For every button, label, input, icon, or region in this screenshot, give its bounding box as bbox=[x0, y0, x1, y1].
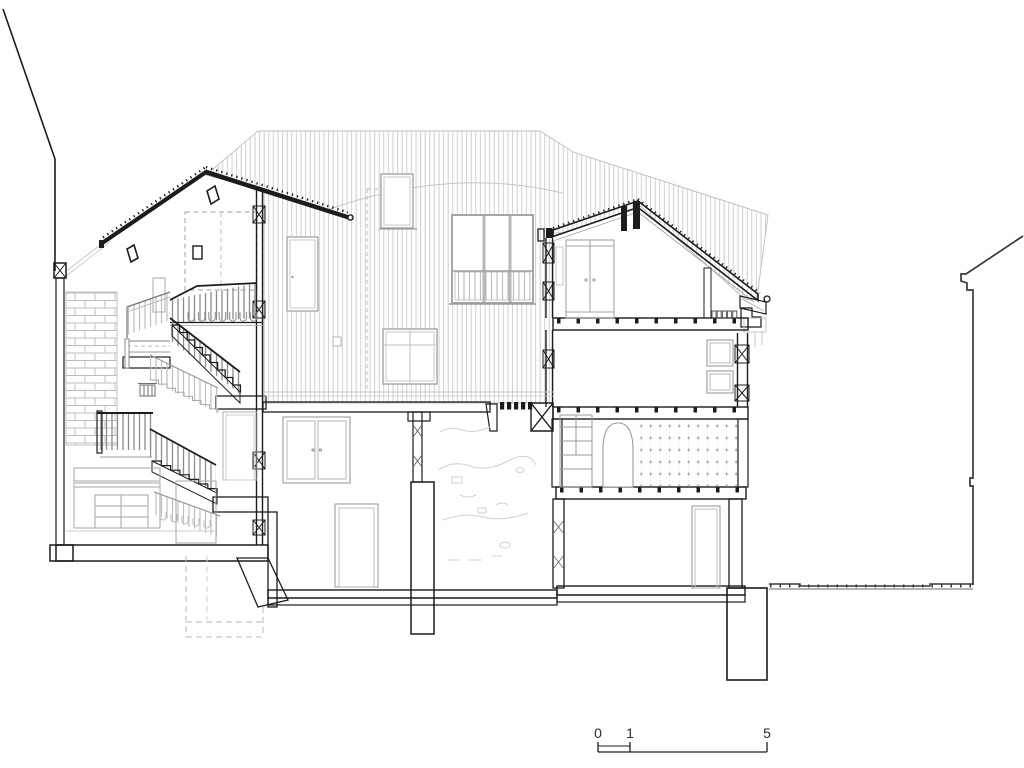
stone-pier-center bbox=[411, 482, 434, 634]
roof-vent-3 bbox=[193, 246, 202, 259]
scale-label-5: 5 bbox=[763, 725, 771, 741]
background-facade bbox=[206, 131, 768, 403]
section-drawing: 0 1 5 bbox=[0, 0, 1024, 768]
gallery-balustrade bbox=[170, 283, 263, 326]
attic-wardrobe bbox=[566, 240, 614, 318]
scale-label-1: 1 bbox=[626, 725, 634, 741]
right-floor-2 bbox=[553, 407, 748, 419]
void-left-wall bbox=[413, 412, 422, 482]
door-floor2-landing bbox=[223, 412, 257, 480]
drawing-sheet: 0 1 5 bbox=[0, 0, 1024, 768]
floor2-landing-slab bbox=[216, 396, 266, 409]
ground-line-right bbox=[769, 584, 973, 589]
corridor-wall-block bbox=[531, 403, 553, 431]
basement-dashed-outline bbox=[186, 556, 263, 637]
wall-switch-box bbox=[333, 337, 341, 346]
ridge-post-2 bbox=[633, 201, 640, 229]
shelf-unit bbox=[560, 415, 592, 487]
basement-door-right bbox=[692, 506, 720, 588]
arched-niche bbox=[603, 423, 633, 487]
slab-ramp bbox=[237, 558, 288, 607]
center-cupboard bbox=[283, 417, 350, 483]
background-door-upper bbox=[287, 237, 318, 311]
right-floor-1 bbox=[553, 318, 748, 330]
background-balcony-window bbox=[449, 215, 536, 304]
mid-landing-balustrade bbox=[97, 411, 153, 457]
walkway-end-post bbox=[486, 404, 497, 431]
tiled-wall bbox=[634, 419, 737, 487]
attic-wall-niche bbox=[556, 247, 563, 285]
walkway-step bbox=[408, 412, 430, 421]
ridge-post-1 bbox=[621, 206, 627, 231]
ground-floor-slab bbox=[56, 545, 268, 561]
background-window-floor2 bbox=[383, 329, 437, 384]
basement-door-left bbox=[335, 504, 378, 587]
attic-post bbox=[704, 268, 711, 318]
boundary-line-left bbox=[3, 9, 55, 271]
wall-footing bbox=[50, 545, 73, 561]
floor1-landing-slab bbox=[213, 497, 268, 512]
neighbor-building-outline bbox=[961, 236, 1023, 585]
staircase bbox=[97, 283, 263, 538]
roof-vent-1 bbox=[127, 245, 138, 262]
scale-label-0: 0 bbox=[594, 725, 602, 741]
roof-vent-2 bbox=[207, 186, 219, 204]
upper-return-flight bbox=[127, 292, 170, 338]
attic-dashed-outline bbox=[185, 212, 257, 290]
right-gutter bbox=[764, 296, 770, 302]
radiator bbox=[712, 311, 737, 318]
bottom-slab-left bbox=[268, 590, 557, 605]
background-attic-window bbox=[379, 174, 417, 229]
scale-bar: 0 1 5 bbox=[594, 725, 771, 752]
eave-detail-right bbox=[740, 296, 766, 347]
void-rock-sketch bbox=[438, 427, 536, 560]
plant-pot bbox=[138, 384, 157, 397]
wall-frames bbox=[707, 340, 733, 393]
right-floor-3 bbox=[556, 487, 746, 499]
